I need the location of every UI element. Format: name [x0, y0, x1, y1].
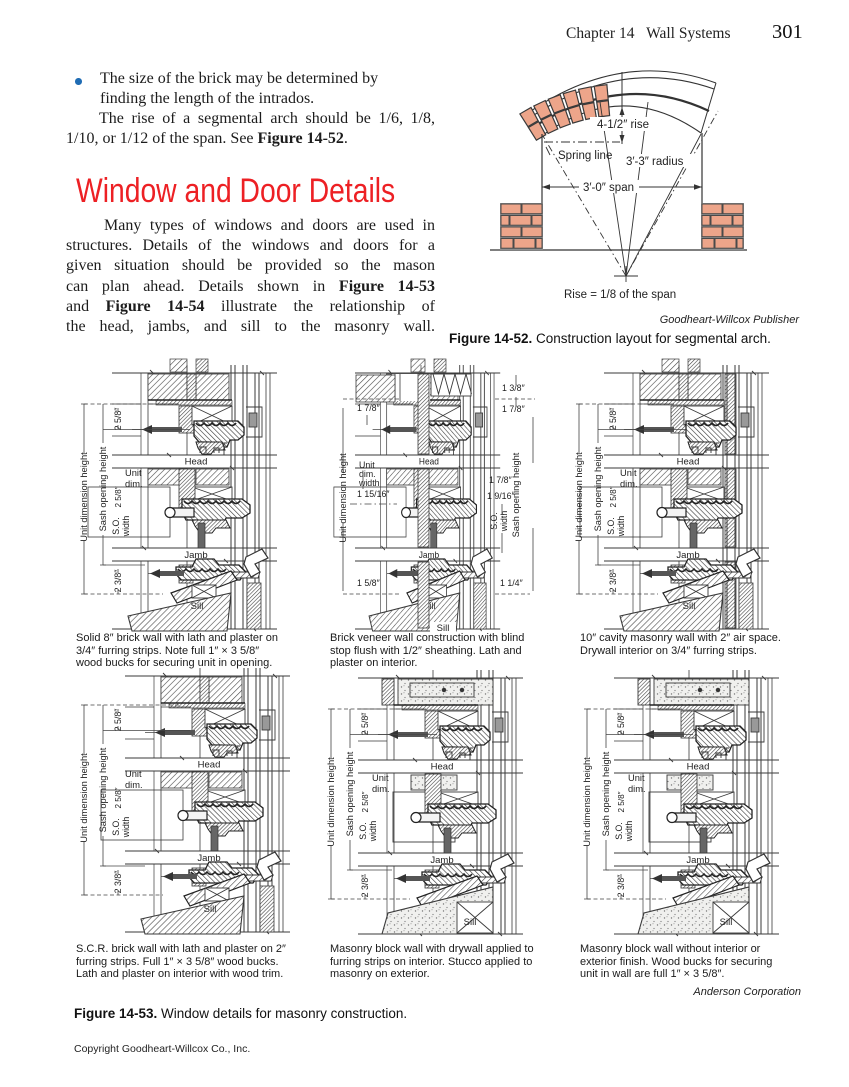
- svg-text:2 5/8″: 2 5/8″: [114, 486, 123, 507]
- svg-text:2 5/8″: 2 5/8″: [617, 791, 626, 812]
- svg-text:Unit dimension height: Unit dimension height: [338, 453, 348, 543]
- svg-text:1 3/8″: 1 3/8″: [502, 383, 525, 393]
- svg-text:Unit dimension height: Unit dimension height: [326, 757, 336, 847]
- svg-text:Unit: Unit: [620, 468, 637, 478]
- svg-text:3′-0″ span: 3′-0″ span: [583, 182, 634, 194]
- svg-text:Unit dimension height: Unit dimension height: [79, 452, 89, 542]
- svg-text:Unit: Unit: [125, 468, 142, 478]
- svg-text:dim.: dim.: [628, 784, 646, 794]
- svg-text:width: width: [358, 478, 380, 488]
- svg-text:S.O.: S.O.: [606, 517, 616, 535]
- svg-text:Sash opening height: Sash opening height: [593, 446, 603, 531]
- svg-text:2 5/8″: 2 5/8″: [608, 408, 618, 431]
- svg-text:width: width: [368, 821, 378, 843]
- svg-text:2 5/8″: 2 5/8″: [113, 408, 123, 431]
- svg-text:Unit: Unit: [372, 773, 389, 783]
- svg-text:2 3/8″: 2 3/8″: [113, 871, 123, 894]
- svg-text:Spring line: Spring line: [558, 150, 612, 162]
- svg-text:2 5/8″: 2 5/8″: [616, 713, 626, 736]
- svg-text:1 7/8″: 1 7/8″: [489, 475, 512, 485]
- svg-text:S.O.: S.O.: [111, 517, 121, 535]
- svg-text:2 5/8″: 2 5/8″: [113, 709, 123, 732]
- svg-text:2 5/8″: 2 5/8″: [114, 787, 123, 808]
- svg-text:dim.: dim.: [125, 479, 143, 489]
- svg-text:Sash opening height: Sash opening height: [345, 751, 355, 836]
- svg-text:Unit: Unit: [125, 769, 142, 779]
- svg-text:1 1/4″: 1 1/4″: [500, 578, 523, 588]
- svg-text:2 3/8″: 2 3/8″: [113, 570, 123, 593]
- svg-text:Rise = 1/8 of the span: Rise = 1/8 of the span: [564, 289, 676, 301]
- svg-text:2 5/8″: 2 5/8″: [609, 486, 618, 507]
- svg-text:width: width: [121, 817, 131, 839]
- svg-text:width: width: [499, 511, 509, 533]
- svg-text:Unit dimension height: Unit dimension height: [79, 753, 89, 843]
- svg-text:dim.: dim.: [125, 780, 143, 790]
- svg-text:4-1/2″ rise: 4-1/2″ rise: [597, 119, 649, 131]
- svg-text:1 7/8″: 1 7/8″: [502, 404, 525, 414]
- svg-text:2 3/8″: 2 3/8″: [608, 570, 618, 593]
- svg-text:1 15/16″: 1 15/16″: [357, 489, 389, 499]
- svg-text:2 5/8″: 2 5/8″: [360, 713, 370, 736]
- svg-text:1 5/8″: 1 5/8″: [357, 578, 380, 588]
- svg-text:2 5/8″: 2 5/8″: [361, 791, 370, 812]
- svg-text:S.O.: S.O.: [358, 822, 368, 840]
- svg-text:dim.: dim.: [372, 784, 390, 794]
- svg-text:Sash opening height: Sash opening height: [98, 446, 108, 531]
- svg-text:dim.: dim.: [620, 479, 638, 489]
- svg-text:S.O.: S.O.: [111, 818, 121, 836]
- svg-text:1 7/8″: 1 7/8″: [357, 403, 380, 413]
- svg-text:Sash opening height: Sash opening height: [98, 747, 108, 832]
- svg-text:2 3/8″: 2 3/8″: [616, 875, 626, 898]
- svg-text:width: width: [616, 516, 626, 538]
- svg-text:S.O.: S.O.: [489, 512, 499, 530]
- svg-text:width: width: [624, 821, 634, 843]
- svg-text:2 3/8″: 2 3/8″: [360, 875, 370, 898]
- svg-text:width: width: [121, 516, 131, 538]
- svg-text:Unit dimension height: Unit dimension height: [574, 452, 584, 542]
- svg-text:S.O.: S.O.: [614, 822, 624, 840]
- svg-text:Unit dimension height: Unit dimension height: [582, 757, 592, 847]
- svg-text:Sash opening height: Sash opening height: [601, 751, 611, 836]
- svg-text:Unit: Unit: [628, 773, 645, 783]
- svg-text:3′-3″ radius: 3′-3″ radius: [626, 156, 684, 168]
- svg-text:1 9/16″: 1 9/16″: [487, 491, 515, 501]
